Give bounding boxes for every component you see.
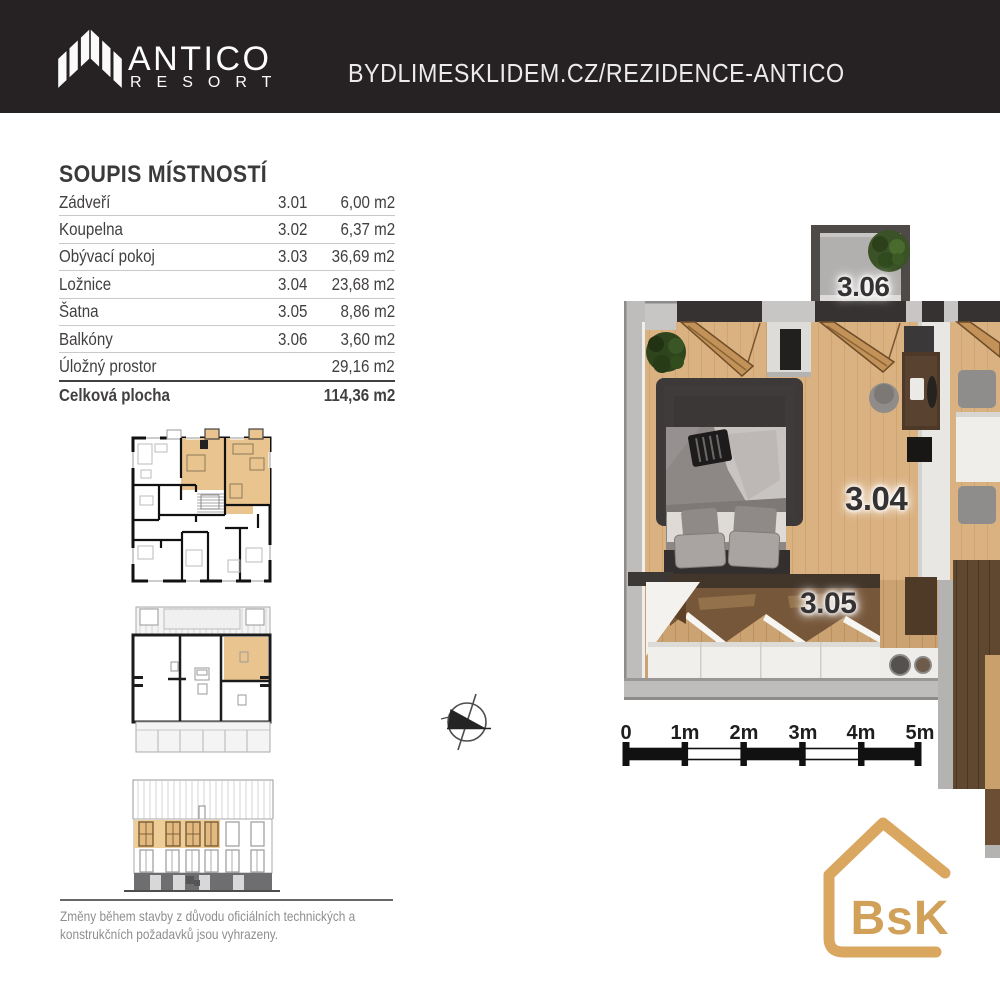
svg-text:BsK: BsK [850, 892, 949, 945]
